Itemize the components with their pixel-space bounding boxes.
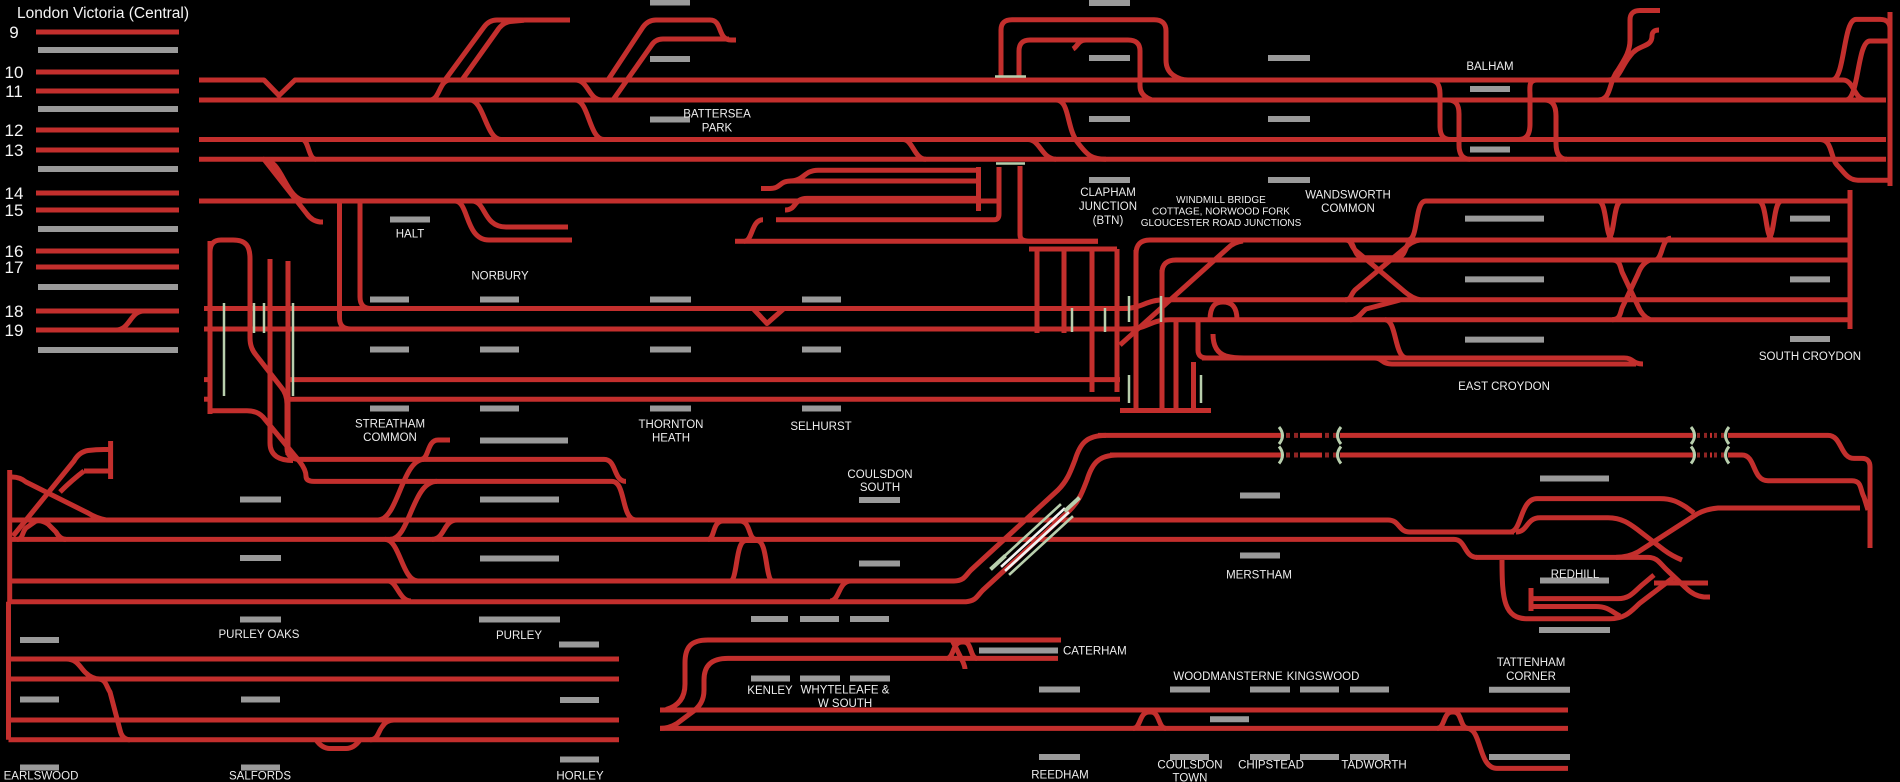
svg-text:London Victoria (Central): London Victoria (Central) [17, 5, 189, 22]
svg-text:COTTAGE, NORWOOD FORK: COTTAGE, NORWOOD FORK [1152, 207, 1290, 218]
svg-text:GLOUCESTER ROAD JUNCTIONS: GLOUCESTER ROAD JUNCTIONS [1141, 218, 1302, 229]
svg-text:CORNER: CORNER [1506, 671, 1556, 683]
svg-text:SOUTH CROYDON: SOUTH CROYDON [1759, 351, 1861, 363]
svg-text:NORBURY: NORBURY [471, 271, 529, 283]
svg-text:11: 11 [5, 82, 23, 101]
svg-text:10: 10 [5, 63, 24, 82]
svg-text:BATTERSEA: BATTERSEA [683, 109, 751, 121]
svg-text:18: 18 [5, 302, 24, 321]
svg-text:19: 19 [5, 321, 24, 340]
svg-text:17: 17 [5, 258, 24, 277]
svg-text:CATERHAM: CATERHAM [1063, 646, 1127, 658]
svg-text:15: 15 [5, 201, 24, 220]
svg-text:CHIPSTEAD: CHIPSTEAD [1238, 760, 1304, 772]
svg-text:SALFORDS: SALFORDS [229, 771, 291, 782]
svg-text:COULSDON: COULSDON [1157, 760, 1222, 772]
svg-text:COMMON: COMMON [1321, 203, 1375, 215]
svg-text:TADWORTH: TADWORTH [1341, 760, 1406, 772]
svg-text:THORNTON: THORNTON [639, 419, 704, 431]
svg-text:REEDHAM: REEDHAM [1031, 770, 1089, 782]
svg-text:HORLEY: HORLEY [556, 771, 604, 782]
svg-text:W SOUTH: W SOUTH [818, 698, 872, 710]
svg-text:COMMON: COMMON [363, 432, 417, 444]
svg-text:CLAPHAM: CLAPHAM [1080, 187, 1136, 199]
svg-text:HALT: HALT [396, 229, 425, 241]
svg-text:MERSTHAM: MERSTHAM [1226, 570, 1292, 582]
svg-text:PARK: PARK [702, 123, 733, 135]
svg-text:BALHAM: BALHAM [1466, 61, 1513, 73]
svg-text:13: 13 [5, 141, 24, 160]
svg-text:WANDSWORTH: WANDSWORTH [1305, 190, 1391, 202]
svg-text:JUNCTION: JUNCTION [1079, 201, 1137, 213]
svg-text:PURLEY: PURLEY [496, 630, 542, 642]
svg-text:PURLEY OAKS: PURLEY OAKS [219, 629, 300, 641]
svg-text:SOUTH: SOUTH [860, 482, 900, 494]
svg-text:9: 9 [9, 23, 18, 42]
svg-text:COULSDON: COULSDON [847, 469, 912, 481]
svg-text:EAST CROYDON: EAST CROYDON [1458, 381, 1550, 393]
svg-text:WINDMILL BRIDGE: WINDMILL BRIDGE [1176, 195, 1266, 206]
svg-text:REDHILL: REDHILL [1551, 569, 1600, 581]
svg-text:EARLSWOOD: EARLSWOOD [4, 771, 79, 782]
svg-text:WHYTELEAFE &: WHYTELEAFE & [801, 685, 890, 697]
svg-text:KENLEY: KENLEY [747, 685, 793, 697]
svg-text:TOWN: TOWN [1173, 773, 1208, 782]
svg-text:12: 12 [5, 121, 24, 140]
svg-text:KINGSWOOD: KINGSWOOD [1287, 671, 1360, 683]
svg-text:TATTENHAM: TATTENHAM [1497, 657, 1566, 669]
svg-text:SELHURST: SELHURST [790, 421, 851, 433]
svg-text:HEATH: HEATH [652, 433, 690, 445]
svg-text:STREATHAM: STREATHAM [355, 419, 425, 431]
svg-text:(BTN): (BTN) [1093, 215, 1124, 227]
svg-text:WOODMANSTERNE: WOODMANSTERNE [1173, 671, 1283, 683]
